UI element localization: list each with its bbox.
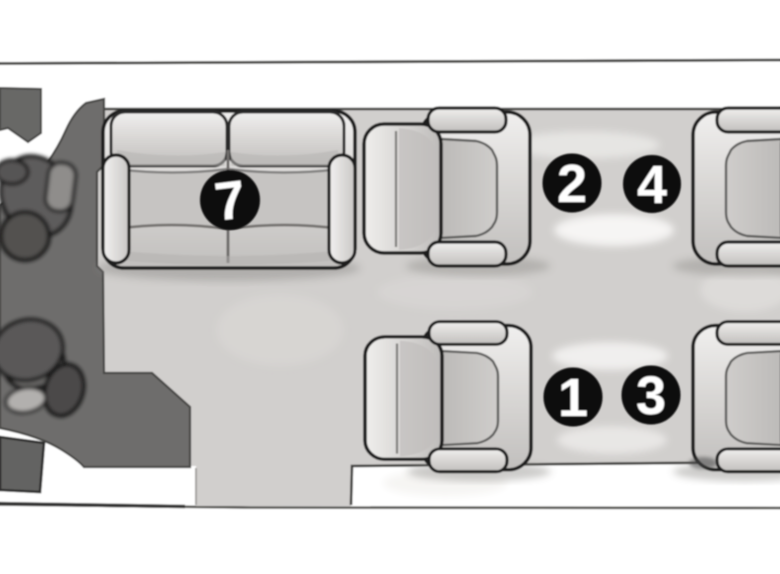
svg-text:2: 2 xyxy=(557,154,587,214)
svg-text:1: 1 xyxy=(558,368,588,428)
svg-text:3: 3 xyxy=(636,366,666,426)
svg-text:4: 4 xyxy=(637,155,667,215)
